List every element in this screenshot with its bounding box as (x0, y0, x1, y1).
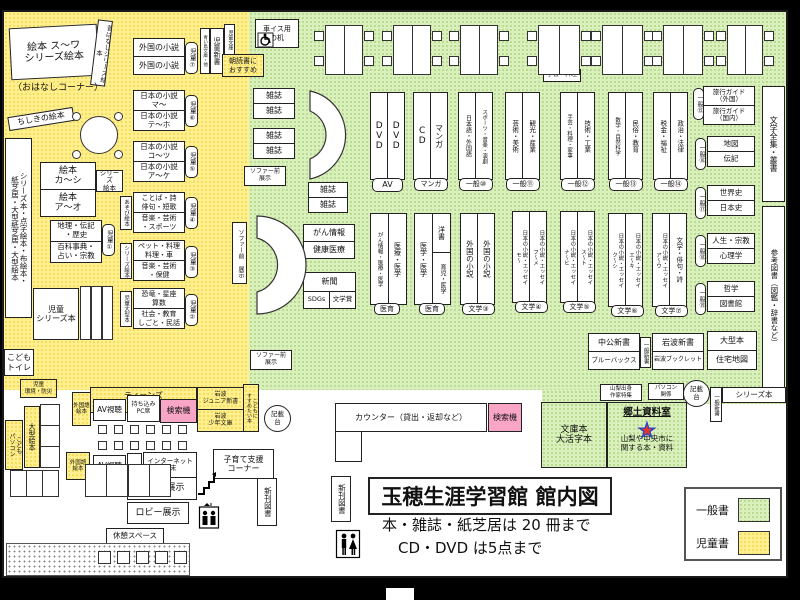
shelf-sdgs: SDGs (303, 291, 330, 309)
tag-jido-5: 児童⑤ (185, 146, 198, 178)
shelf-shinrigaku: 心理学 (707, 248, 755, 264)
tag-iiku-2: 医育 (419, 303, 445, 315)
legend-children-label: 児童書 (696, 535, 730, 551)
lobby-tenji: ロビー展示 (127, 502, 189, 524)
tag-ippan-13: 一般⑬ (609, 178, 643, 191)
reading-table (460, 25, 498, 75)
shelf-denki: 伝記 (707, 151, 755, 167)
shelf-jutaku-chizu: 住宅地図 (707, 350, 757, 370)
legend-children-swatch (738, 531, 770, 555)
loan-limit-note-av: CD・DVD は5点まで (398, 537, 542, 558)
tag-manga: マンガ (414, 178, 448, 191)
shelf-ehon-su-wa: 絵本 ス～ワ シリーズ絵本 (9, 24, 100, 81)
chair (581, 56, 591, 66)
shelf-shugei-ryori-kaji: 手芸・料理・家事 (560, 92, 578, 180)
sofa-crescent-middle (248, 213, 304, 317)
chair (364, 56, 374, 66)
bottom-notch (386, 588, 414, 600)
reading-table (663, 25, 703, 75)
sign-asadokusho-osusume: 朝読書に おすすめ (222, 54, 264, 77)
bookshelf (102, 286, 113, 340)
shelf-cell (40, 404, 60, 426)
bench (128, 464, 150, 497)
chair (499, 31, 509, 41)
chair (652, 31, 662, 41)
chair (114, 150, 123, 159)
map-title: 玉穂生涯学習館 館内図 (368, 477, 612, 515)
shelf-kamishibai-oogata-strip: シリーズ本・点字絵本・布絵本・ 紙芝居・大型紙芝居・大型絵本 (5, 138, 32, 318)
bench (42, 470, 59, 497)
tag-asobi-ehon: あそび絵本 (120, 196, 132, 230)
shelf-bungaku-haiku-shi: 文学・俳句・詩 (669, 213, 687, 307)
shelf-jinsei-shukyo: 人生・宗教 (707, 233, 755, 249)
chair (716, 31, 726, 41)
av-shichou-1: AV視聴 (93, 399, 126, 421)
shelf-cell (40, 446, 60, 468)
chair (130, 425, 139, 434)
shelf-chuko-shinsho: 中公新書 (588, 333, 640, 352)
rest-seat (155, 551, 168, 564)
chair (704, 56, 714, 66)
shelf-chizu: 地図 (707, 136, 755, 152)
shelf-nihon-essay-fu-me: 日本の小説・エッセイ フ～メ (529, 211, 547, 303)
chair (114, 112, 123, 121)
tag-ippan-19: 一般⑲ (695, 283, 706, 315)
tag-jido-3: 児童③ (185, 246, 198, 278)
reading-table (727, 25, 763, 75)
shelf-nihon-essay-na-hi: 日本の小説・エッセイ ナ～ヒ (560, 211, 578, 303)
shelf-toshokan: 図書館 (707, 296, 755, 312)
shelf-cell (40, 425, 60, 447)
shelf-manga: マンガ (430, 92, 448, 180)
kisaidai-circle-1: 記載 台 (683, 380, 710, 407)
shelf-iwanami-booklet: 岩波ブックレット (652, 351, 704, 370)
shelf-bungakusho: 文学賞 (329, 291, 356, 309)
shelf-kenko-iryo: 健康医療 (303, 241, 355, 259)
shelf-nihon-shosetsu-te-ho: 日本の小説 テ～ホ (133, 110, 185, 131)
tag-aoitori-bunko-hoka: 青い鳥文庫・他 (200, 28, 210, 74)
chair (98, 425, 107, 434)
sign-yamanashi-sakka: 山梨出身 作家特集 (600, 384, 642, 401)
wheelchair-icon (258, 33, 273, 47)
legend: 一般書 児童書 (684, 487, 782, 561)
kensakuki-1: 検索機 (160, 399, 197, 423)
shelf-dvd-1: DVD (370, 92, 388, 180)
sign-sofa-mae-tenji-2: ソファー前 展示 (232, 222, 247, 284)
tag-ippan-shinsho-2: 一般新書 (710, 387, 722, 422)
chair (314, 31, 324, 41)
shelf-nihon-essay-a-u: 日本の小説・エッセイ ア～ウ (652, 213, 670, 307)
kyodo-star-icon: ★ (634, 417, 660, 443)
shelf-ryoko-guide-kokunai: 旅行ガイド （国内） (703, 105, 755, 125)
shelf-gijutsu-kogyo: 技術・工業 (577, 92, 595, 180)
shelf-iryo-igaku: 医療・医学 (388, 213, 407, 305)
bookshelf (80, 286, 91, 340)
chair (704, 31, 714, 41)
mochikomi-pc-seki: 持ち込み PC席 (127, 395, 160, 422)
tag-kodomo-susumetai-hon: こどもに すすめたい本 (243, 384, 259, 432)
shelf-zasshi-1b: 雑誌 (253, 103, 295, 119)
chair (130, 441, 139, 450)
reading-table (325, 25, 363, 75)
bench (26, 470, 43, 497)
chair (72, 112, 81, 121)
tag-series-ehon-2: シリーズ絵本 (120, 243, 132, 279)
tag-jido-7: 児童⑦ (185, 42, 198, 74)
shelf-dvd-2: DVD (387, 92, 405, 180)
shelf-cd: CD (413, 92, 431, 180)
chair (527, 56, 537, 66)
chair (527, 31, 537, 41)
shelf-ryoko-guide-gaikoku: 旅行ガイド （外国） (703, 86, 755, 106)
tag-jido-1: 児童① (102, 224, 115, 256)
shelf-nihon-essay-mo: 日本の小説・エッセイ モ～ (512, 211, 530, 303)
tag-iiku-1: 医育 (374, 303, 400, 315)
bookshelf (91, 286, 102, 340)
tag-ippan-17: 一般⑰ (695, 187, 706, 219)
loan-limit-note-books: 本・雑誌・紙芝居は 20 冊まで (382, 514, 591, 535)
shelf-nihon-essay-su-to: 日本の小説・エッセイ ス～ト (577, 211, 595, 303)
tag-ippan-15: 一般⑮ (693, 88, 704, 120)
shelf-zeikin-fukushi: 税金・福祉 (653, 92, 671, 180)
rest-seat (136, 551, 149, 564)
kodomo-toilet: こども トイレ (4, 349, 34, 376)
library-floor-map-screenshot: { "title": { "main": "玉穂生涯学習館 館内図", "not… (0, 0, 800, 600)
shelf-nihon-shosetsu-ma: 日本の小説 マ～ (133, 90, 185, 111)
shelf-gaikoku-shosetsu-b: 外国の小説 (133, 56, 185, 75)
tag-bungaku-7: 文学⑦ (655, 305, 688, 317)
shelf-series-bon: シリーズ本 (722, 387, 786, 403)
shelf-shakai-kyoiku-minwa: 社会・教育 しごと・民話 (133, 308, 185, 329)
shelf-pet-ryori-kuruma: ペット・料理 料理・車 (133, 240, 185, 261)
elevator-icon (199, 503, 219, 529)
sign-sofa-mae-tenji-1: ソファー前 展示 (244, 166, 286, 186)
chair (591, 56, 601, 66)
shelf-sugaku-shizen-kagaku: 数学・自然科学 (608, 92, 626, 180)
rest-seat (117, 551, 130, 564)
legend-general-swatch (738, 498, 770, 522)
chair (432, 31, 442, 41)
shelf-ehon-ka-shi: 絵本 カ～シ (40, 162, 96, 190)
shelf-zasshi-3a: 雑誌 (308, 182, 348, 198)
shelf-geijutsu-bijutsu: 芸術・美術 (505, 92, 523, 180)
tag-ippan-12: 一般⑫ (561, 178, 595, 191)
chair (716, 56, 726, 66)
tag-series-ehon-1: シリーズ 絵本 (96, 170, 123, 192)
shelf-kotoba-shi-haiku: ことば・詩 俳句・短歌 (133, 192, 185, 213)
chair (449, 31, 459, 41)
shelf-nihongo-gaikokugo: 日本語・外国語 (458, 92, 476, 180)
chair (499, 56, 509, 66)
chair (591, 31, 601, 41)
shelf-hyakka-uranai-shukyo: 百科事典・ 占い・宗教 (50, 241, 102, 263)
chair (652, 56, 662, 66)
chair (314, 56, 324, 66)
shinkan-tosho-1: 新刊図書 (257, 478, 277, 526)
sofa-crescent-top (302, 88, 354, 182)
tag-jido-6: 児童⑥ (185, 95, 198, 127)
shelf-shinbun: 新聞 (303, 272, 356, 292)
shelf-bunkobon-daikatsuji: 文庫本 大活字本 (541, 402, 607, 468)
chair (432, 56, 442, 66)
shelf-ongaku-geijutsu-hoken: 音楽・芸術 ・保健 (133, 260, 185, 281)
kosodate-shien-corner: 子育て支援 コーナー (213, 449, 274, 479)
shelf-iwanami-junior-shinsho: 岩波 ジュニア新書 (197, 387, 244, 410)
shelf-bungaku-zenshu-sosho: 文学全集・叢書 (762, 86, 785, 202)
shelf-ikuji-igaku: 育児・医学 (432, 252, 451, 305)
tag-jido-bunko: 児童文庫 (224, 24, 235, 55)
shelf-jido-kankyo-bosai: 児童 環境・防災 (20, 379, 57, 398)
chair (114, 425, 123, 434)
shelf-oogata-ehon-label: 大型絵本 (24, 406, 40, 468)
shelf-minzoku-kyoiku: 民俗・教育 (625, 92, 643, 180)
round-table (80, 116, 118, 154)
shelf-tetsugaku: 哲学 (707, 281, 755, 297)
kisaidai-circle-2: 記載 台 (264, 405, 291, 432)
shelf-gaikokugo-ehon-1: 外国語 絵本 (72, 392, 91, 426)
reading-table (538, 25, 580, 75)
shelf-oogata-bon: 大型本 (707, 331, 757, 351)
tag-jido-4: 児童④ (185, 197, 198, 229)
chair (364, 31, 374, 41)
tag-ippan-shinsho-1: 一般新書 (640, 337, 651, 368)
bench (149, 464, 171, 497)
tag-ippan-14: 一般⑭ (654, 178, 688, 191)
tag-ippan-18: 一般⑱ (695, 235, 706, 267)
chair (382, 56, 392, 66)
kensakuki-2: 検索機 (488, 403, 522, 432)
tag-ippan-16: 一般⑯ (695, 138, 706, 170)
bench (10, 470, 27, 497)
kyukei-space: 休憩スペース (106, 528, 164, 544)
shelf-blue-backs: ブルーバックス (588, 351, 640, 370)
chair (72, 150, 81, 159)
chair (98, 441, 107, 450)
sign-sofa-mae-tenji-3: ソファー前 展示 (250, 350, 292, 370)
shelf-chiri-denki-rekishi: 地理・伝記 ・歴史 (50, 220, 102, 242)
reading-table (393, 25, 431, 75)
sign-pc-kankei: パソコン 関係 (648, 383, 684, 400)
shelf-sports-ongaku-engeki: スポーツ・音楽・演劇 (475, 92, 493, 180)
shelf-gaikoku-shosetsu-d: 外国の小説 (477, 213, 495, 305)
shelf-zasshi-1a: 雑誌 (253, 88, 295, 104)
rest-seat (174, 551, 187, 564)
legend-row-general: 一般書 (696, 498, 770, 522)
shelf-zasshi-2a: 雑誌 (253, 128, 295, 144)
shelf-igaku-igaku: 医学・医学 (414, 213, 433, 305)
shelf-jido-series-bon: 児童 シリーズ本 (33, 288, 79, 340)
shinkan-tosho-2: 新刊図書 (331, 476, 351, 522)
legend-row-children: 児童書 (696, 531, 770, 555)
counter-kashidashi: カウンター（貸出・返却など） (335, 403, 487, 432)
shelf-zasshi-2b: 雑誌 (253, 143, 295, 159)
stairs-icon (196, 470, 218, 496)
shelf-kodomo-pc: こども パソコン (5, 420, 23, 470)
shelf-kanko-sangyo: 観光・産業 (522, 92, 540, 180)
chair (764, 56, 774, 66)
shelf-nihon-essay-ku-shi: 日本の小説・エッセイ ク～シ (608, 213, 626, 307)
tag-jido-2: 児童② (185, 294, 198, 326)
bench (85, 464, 107, 497)
shelf-kyoryu-seiza-sansu: 恐竜・星座 算数 (133, 288, 185, 309)
shelf-yosho: 洋書 (432, 213, 451, 253)
legend-general-label: 一般書 (696, 502, 730, 518)
shelf-nihon-shosetsu-ko-tsu: 日本の小説 コ～ツ (133, 141, 185, 162)
shelf-gan-joho: がん情報 (303, 224, 355, 242)
chair (449, 56, 459, 66)
shelf-iwanami-shonen-bunko: 岩波 少年文庫 (197, 409, 244, 432)
rest-seat (98, 551, 111, 564)
shelf-seiji-horitsu: 政治・法律 (670, 92, 688, 180)
tag-bungaku-5: 文学⑤ (563, 301, 596, 313)
toilet-icon (336, 530, 360, 558)
chair (382, 31, 392, 41)
chair (764, 31, 774, 41)
shelf-nihon-shosetsu-a-ke: 日本の小説 ア～ケ (133, 161, 185, 182)
tag-ippan-11: 一般⑪ (506, 178, 540, 191)
shelf-gaikoku-shosetsu-c: 外国の小説 (460, 213, 478, 305)
shelf-ehon-a-o: 絵本 ア～オ (40, 189, 96, 217)
shelf-nihonshi: 日本史 (707, 200, 755, 216)
chair (114, 441, 123, 450)
label-ohanashi-corner: （おはなしコーナー） (6, 82, 110, 95)
reading-table (602, 25, 643, 75)
chair (162, 425, 171, 434)
chair (162, 441, 171, 450)
tag-bungaku-3: 文学③ (462, 303, 495, 315)
shelf-gaikoku-shosetsu-a: 外国の小説 (133, 38, 185, 57)
shelf-ongaku-geijutsu-sports: 音楽・芸術 ・スポーツ (133, 212, 185, 233)
shelf-gan-joho-iryo-igaku: がん情報・医療・医学 (370, 213, 389, 305)
tag-av: AV (372, 178, 403, 192)
chair (178, 425, 187, 434)
chair (581, 31, 591, 41)
shelf-iwanami-shinsho: 岩波新書 (652, 333, 704, 352)
shelf-sanko-tosho: 参考図書（図鑑・辞書など） (762, 206, 785, 390)
tag-ippan-10: 一般⑩ (459, 178, 493, 191)
tag-bungaku-6: 文学⑥ (611, 305, 644, 317)
tag-jido-oogata-bon: 児童大型本 (120, 291, 132, 327)
shelf-sekaishi: 世界史 (707, 185, 755, 201)
chair (146, 425, 155, 434)
shelf-nihon-essay-e-ki: 日本の小説・エッセイ エ～キ (625, 213, 643, 307)
bench (106, 464, 128, 497)
shelf-zasshi-3b: 雑誌 (308, 197, 348, 213)
chair (146, 441, 155, 450)
chair (178, 441, 187, 450)
tag-bungaku-4: 文学④ (515, 301, 548, 313)
